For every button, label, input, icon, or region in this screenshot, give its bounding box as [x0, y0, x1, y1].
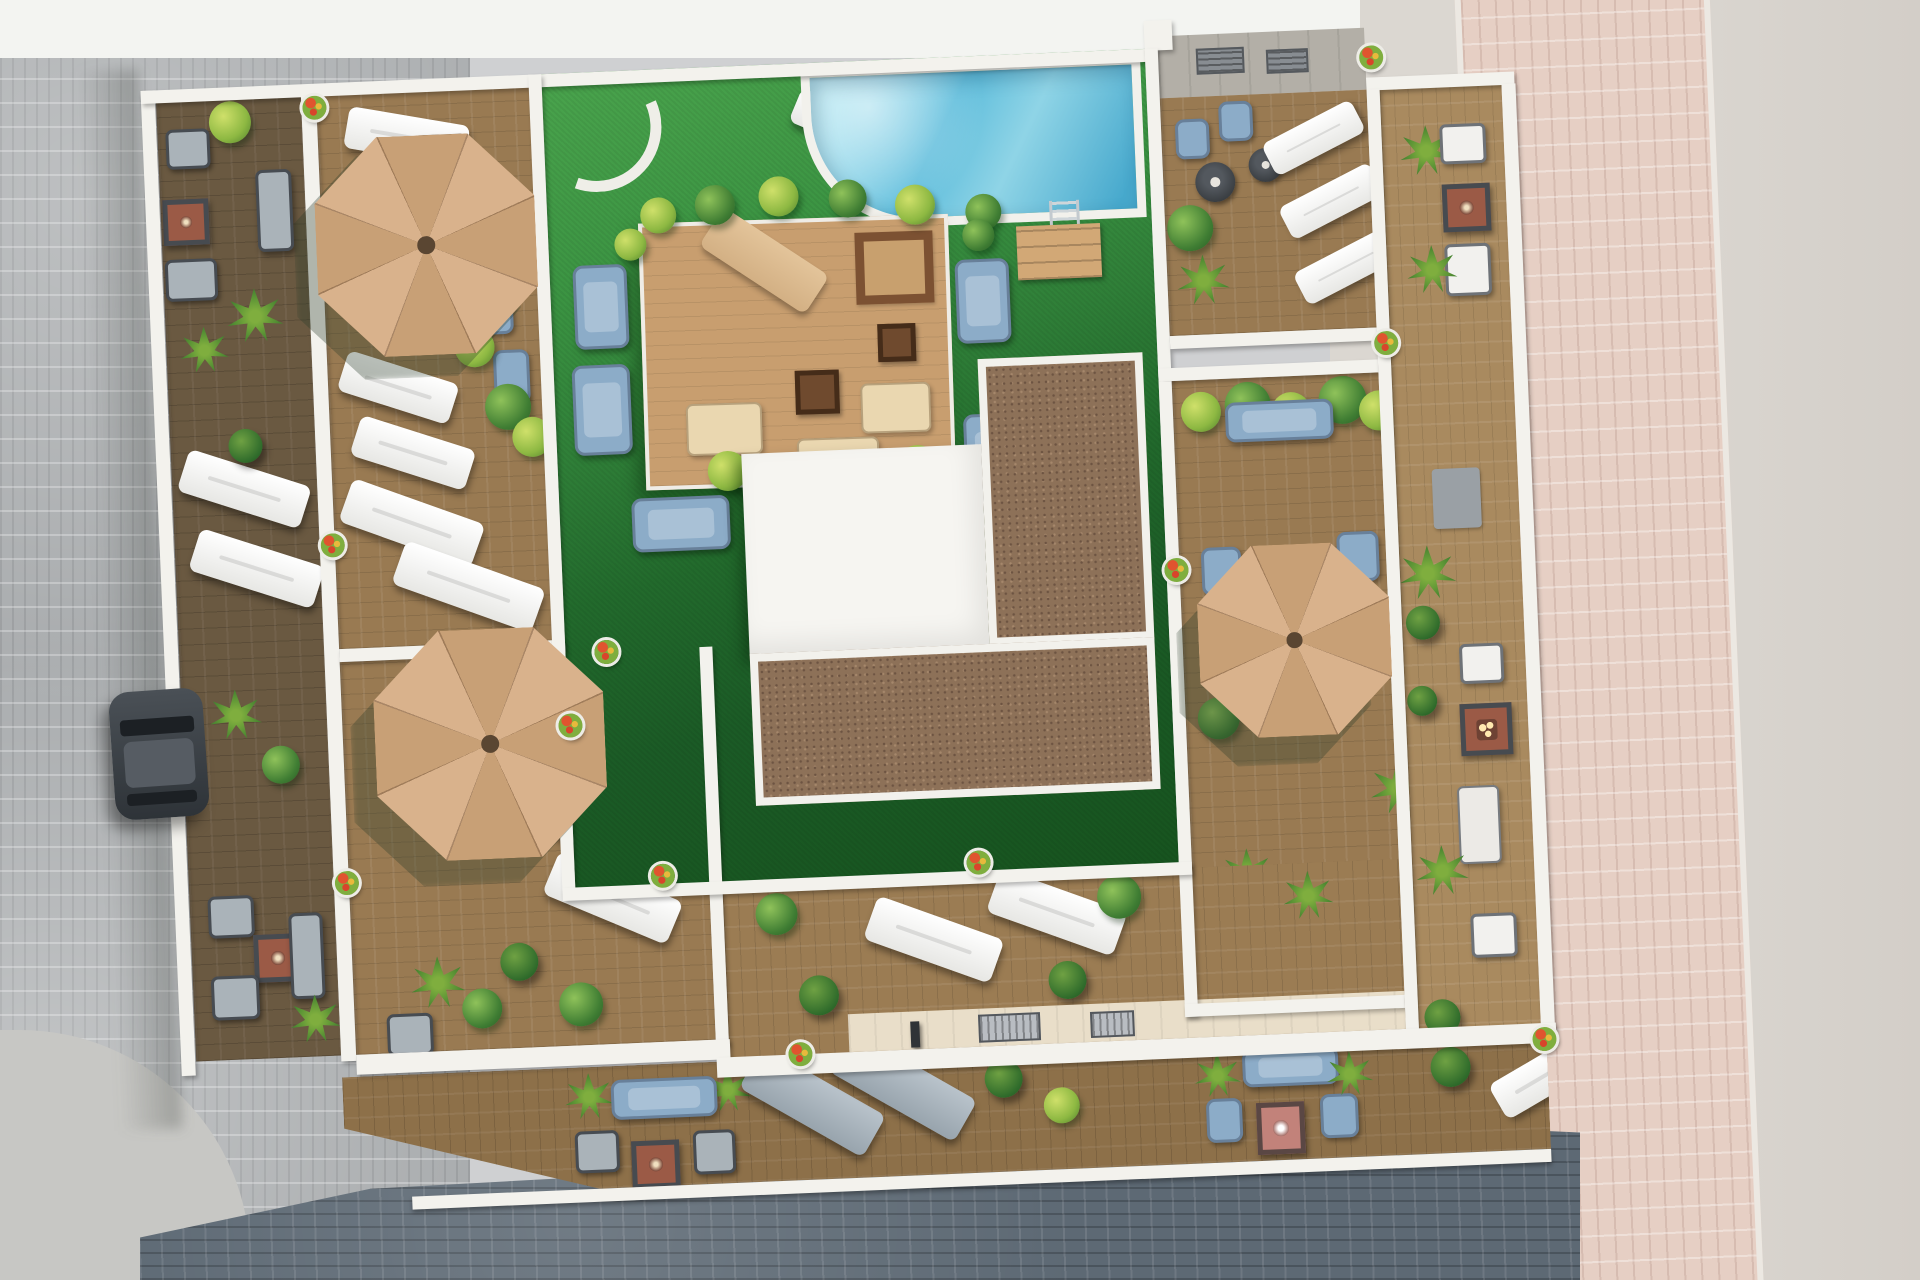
topiary-ball — [1405, 605, 1440, 640]
palm-plant — [1176, 254, 1230, 308]
shrub — [1180, 391, 1222, 433]
fire-pit-table — [1256, 1101, 1306, 1155]
bbq-grill — [1090, 1010, 1135, 1038]
car-rear-window — [127, 789, 198, 806]
sun-lounger-white — [1261, 99, 1366, 177]
fire-pit-table — [1442, 183, 1492, 233]
concrete-service-band — [1157, 28, 1366, 99]
roof-vent — [1196, 47, 1245, 75]
palm-plant — [564, 1072, 614, 1122]
gray-sofa — [288, 912, 326, 999]
fire-pit-table — [162, 198, 210, 246]
roof-vent — [1266, 48, 1309, 74]
gray-armchair — [165, 258, 219, 302]
shrub — [261, 745, 301, 785]
blue-armchair — [1218, 100, 1254, 141]
palm-plant — [1282, 870, 1334, 922]
white-armchair — [1470, 912, 1518, 958]
shrub — [1043, 1087, 1080, 1124]
gray-armchair — [693, 1129, 737, 1175]
blue-sofa — [610, 1076, 718, 1120]
palm-plant — [410, 955, 466, 1011]
palm-plant — [1399, 544, 1457, 602]
rooftop-render — [0, 0, 1920, 1280]
fire-pit-table-candles — [1459, 702, 1513, 756]
rooftop-building — [114, 0, 1574, 1234]
pool-timber-steps — [1016, 223, 1102, 280]
palm-plant — [209, 688, 263, 742]
round-side-table — [1194, 161, 1236, 203]
sun-lounger-white — [349, 415, 476, 491]
gray-mat — [1432, 467, 1482, 529]
palm-plant — [290, 993, 342, 1045]
shrub — [208, 100, 252, 144]
floor-cushion — [686, 402, 764, 456]
sun-lounger-white — [1278, 162, 1385, 241]
low-square-table — [877, 323, 916, 362]
terrace-top-left — [316, 86, 559, 649]
car-windshield — [120, 716, 195, 737]
blue-armchair — [1206, 1098, 1244, 1143]
outdoor-rug — [854, 230, 934, 304]
shrub — [755, 892, 799, 936]
low-square-table — [795, 369, 840, 414]
shrub — [461, 988, 503, 1030]
topiary-ball — [1430, 1046, 1472, 1088]
shrub — [558, 981, 604, 1027]
blue-armchair — [1320, 1093, 1360, 1139]
terrace-top-right-deck — [1160, 90, 1377, 336]
blue-lounge-sofa — [571, 364, 633, 456]
car-roof — [123, 738, 196, 789]
gravel-roof — [978, 352, 1155, 646]
sun-lounger-white — [188, 528, 325, 609]
blue-lounge-sofa — [631, 495, 731, 553]
bbq-grill — [978, 1012, 1041, 1043]
flower-pot — [1532, 1027, 1557, 1052]
gray-armchair — [575, 1130, 621, 1174]
flower-pot — [1359, 45, 1384, 70]
shrub — [758, 176, 800, 218]
topiary-ball — [1407, 685, 1438, 716]
floor-cushion — [860, 382, 932, 434]
shrub — [962, 218, 995, 251]
shrub — [1166, 204, 1214, 252]
gravel-roof — [750, 637, 1161, 806]
sun-lounger-white — [863, 895, 1005, 983]
blue-sofa — [1225, 398, 1335, 442]
topiary-ball — [228, 428, 263, 463]
white-armchair — [1459, 642, 1505, 684]
communal-courtyard-lawn — [541, 49, 1179, 894]
light-bollard — [910, 1021, 920, 1047]
blue-armchair — [1175, 118, 1211, 159]
gray-armchair — [207, 895, 255, 939]
topiary-ball — [500, 942, 540, 982]
parapet-pillar — [1143, 20, 1172, 51]
gray-sofa — [255, 169, 294, 252]
white-armchair — [1444, 243, 1492, 297]
palm-plant — [1194, 1052, 1242, 1100]
white-armchair — [1439, 123, 1487, 165]
fire-pit-table — [631, 1139, 681, 1189]
blue-lounge-sofa — [954, 258, 1011, 344]
shrub — [1096, 874, 1142, 920]
topiary-ball — [1048, 960, 1088, 1000]
gray-armchair — [211, 975, 261, 1021]
white-ottoman — [1457, 785, 1502, 865]
central-roof-core-white — [741, 444, 989, 656]
gray-armchair — [165, 128, 211, 170]
terrace-top-right — [1157, 28, 1376, 336]
topiary-ball — [798, 975, 840, 1017]
palm-plant — [179, 326, 229, 376]
gray-armchair — [386, 1013, 434, 1057]
blue-lounge-sofa — [572, 264, 629, 350]
palm-plant — [226, 287, 284, 345]
parked-car — [108, 687, 211, 821]
